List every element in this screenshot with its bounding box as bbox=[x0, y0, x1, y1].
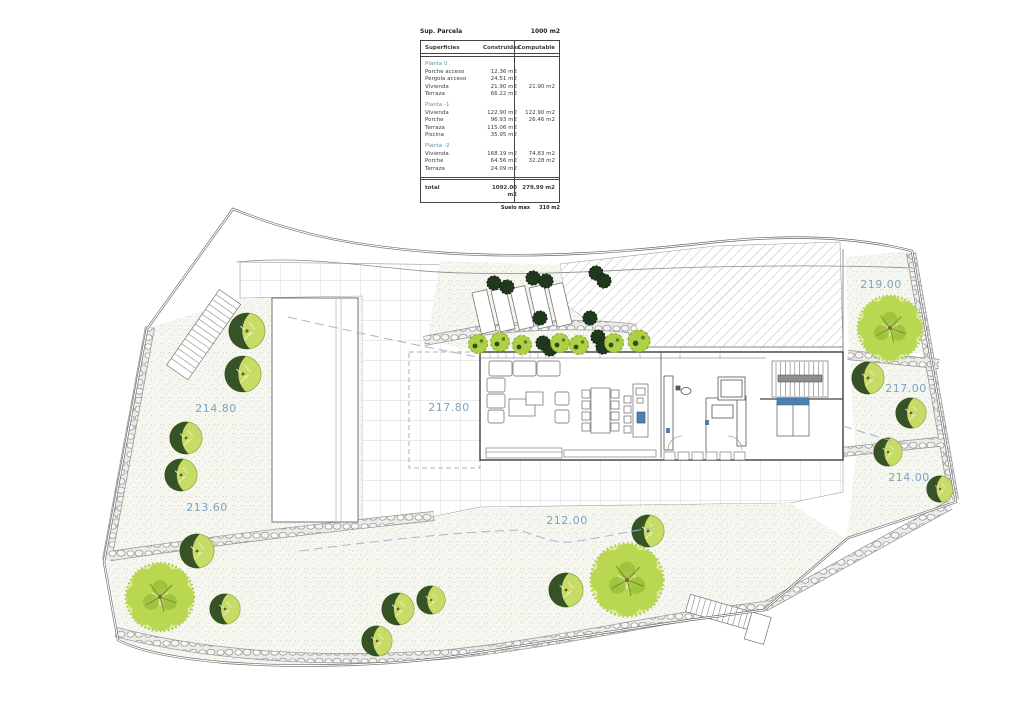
row-built: 122.90 m2 bbox=[483, 110, 517, 117]
shrub-icon bbox=[570, 336, 589, 355]
table-row: Terraza 115.06 m2 bbox=[425, 125, 555, 132]
entrance-wing bbox=[272, 298, 358, 522]
shrub-icon bbox=[605, 334, 624, 353]
large-tree-icon bbox=[126, 563, 194, 631]
column-divider bbox=[514, 41, 515, 201]
tree-icon bbox=[416, 586, 445, 615]
bush-icon bbox=[500, 280, 514, 294]
section-planta-2: Planta -2 bbox=[425, 143, 555, 150]
shrub-icon bbox=[469, 335, 488, 354]
level-label: 214.00 bbox=[888, 471, 930, 484]
table-total-row: total 1092.00 m2 279.99 m2 bbox=[425, 182, 555, 201]
row-computable: 74.83 m2 bbox=[517, 151, 555, 158]
tree-icon bbox=[180, 534, 215, 568]
section-planta-1: Planta -1 bbox=[425, 102, 555, 109]
level-label: 212.00 bbox=[546, 514, 588, 527]
large-tree-icon bbox=[591, 544, 664, 617]
row-label: Terraza bbox=[425, 125, 483, 132]
row-computable: 21.90 m2 bbox=[517, 84, 555, 91]
table-row: Terraza 66.22 m2 bbox=[425, 91, 555, 98]
shrub-icon bbox=[551, 334, 570, 353]
shrub-icon bbox=[491, 333, 510, 352]
table-row: Porche 96.93 m2 26.46 m2 bbox=[425, 117, 555, 124]
table-row: Vivienda 21.90 m2 21.90 m2 bbox=[425, 84, 555, 91]
row-label: Terraza bbox=[425, 91, 483, 98]
row-built: 24.09 m2 bbox=[483, 166, 517, 173]
table-row: Vivienda 168.19 m2 74.83 m2 bbox=[425, 151, 555, 158]
tree-icon bbox=[362, 626, 393, 656]
row-built: 12.36 m2 bbox=[483, 69, 517, 76]
footnote-label: Suelo max bbox=[501, 205, 530, 212]
table-row: Pergola acceso 24.51 m2 bbox=[425, 76, 555, 83]
bush-icon bbox=[526, 271, 540, 285]
tree-icon bbox=[896, 398, 927, 428]
table-row: Porche 64.56 m2 32.28 m2 bbox=[425, 158, 555, 165]
row-label: Piscina bbox=[425, 132, 483, 139]
bush-icon bbox=[539, 274, 553, 288]
table-footnote: Suelo max 310 m2 bbox=[420, 205, 560, 212]
header-surfaces: Superficies bbox=[425, 45, 483, 52]
header-built: Construidas bbox=[483, 45, 517, 52]
rule bbox=[421, 177, 559, 178]
parcel-label: Sup. Parcela bbox=[420, 28, 462, 35]
rule bbox=[421, 53, 559, 54]
house bbox=[480, 352, 843, 460]
row-built: 66.22 m2 bbox=[483, 91, 517, 98]
drawing-sheet: 214.80 217.80 213.60 212.00 219.00 217.0… bbox=[0, 0, 1024, 724]
table-header-row: Superficies Construidas Computable bbox=[425, 43, 555, 53]
row-built: 96.93 m2 bbox=[483, 117, 517, 124]
tree-icon bbox=[382, 593, 415, 625]
row-built: 64.56 m2 bbox=[483, 158, 517, 165]
tree-icon bbox=[229, 313, 265, 349]
row-label: Pergola acceso bbox=[425, 76, 483, 83]
shrub-icon bbox=[628, 330, 650, 352]
surface-table-box: Superficies Construidas Computable Plant… bbox=[420, 40, 560, 202]
total-label: total bbox=[425, 185, 483, 192]
parcel-title-row: Sup. Parcela 1000 m2 bbox=[420, 28, 560, 35]
level-label: 214.80 bbox=[195, 402, 237, 415]
row-label: Porche bbox=[425, 158, 483, 165]
row-built: 168.19 m2 bbox=[483, 151, 517, 158]
row-label: Vivienda bbox=[425, 84, 483, 91]
tree-icon bbox=[170, 422, 203, 454]
bush-icon bbox=[487, 276, 501, 290]
row-label: Terraza bbox=[425, 166, 483, 173]
section-planta-0: Planta 0 bbox=[425, 61, 555, 68]
row-built: 21.90 m2 bbox=[483, 84, 517, 91]
row-label: Porche bbox=[425, 117, 483, 124]
row-built: 24.51 m2 bbox=[483, 76, 517, 83]
tree-icon bbox=[852, 362, 885, 394]
table-row: Vivienda 122.90 m2 122.90 m2 bbox=[425, 110, 555, 117]
shrub-icon bbox=[513, 336, 532, 355]
table-row: Piscina 35.95 m2 bbox=[425, 132, 555, 139]
bush-icon bbox=[583, 311, 597, 325]
surface-table: Sup. Parcela 1000 m2 Superficies Constru… bbox=[420, 28, 560, 212]
total-built: 1092.00 m2 bbox=[483, 185, 517, 199]
tree-icon bbox=[926, 476, 953, 503]
row-label: Vivienda bbox=[425, 151, 483, 158]
footnote-value: 310 m2 bbox=[539, 205, 560, 212]
tree-icon bbox=[210, 594, 241, 624]
header-computable: Computable bbox=[517, 45, 555, 52]
row-label: Porche acceso bbox=[425, 69, 483, 76]
row-computable: 122.90 m2 bbox=[517, 110, 555, 117]
bush-icon bbox=[533, 311, 547, 325]
rule bbox=[421, 179, 559, 180]
rule bbox=[421, 56, 559, 57]
row-label: Vivienda bbox=[425, 110, 483, 117]
level-label: 219.00 bbox=[860, 278, 902, 291]
parking-stalls bbox=[472, 283, 572, 334]
tree-icon bbox=[549, 573, 584, 607]
row-built: 115.06 m2 bbox=[483, 125, 517, 132]
tree-icon bbox=[225, 356, 261, 392]
row-computable: 32.28 m2 bbox=[517, 158, 555, 165]
table-row: Terraza 24.09 m2 bbox=[425, 166, 555, 173]
level-label: 217.80 bbox=[428, 401, 470, 414]
bed bbox=[777, 398, 809, 436]
large-tree-icon bbox=[858, 296, 923, 361]
tree-icon bbox=[165, 459, 198, 491]
row-computable: 26.46 m2 bbox=[517, 117, 555, 124]
total-computable: 279.99 m2 bbox=[517, 185, 555, 192]
level-label: 217.00 bbox=[885, 382, 927, 395]
parcel-value: 1000 m2 bbox=[531, 28, 560, 35]
table-row: Porche acceso 12.36 m2 bbox=[425, 69, 555, 76]
bush-icon bbox=[597, 274, 611, 288]
level-label: 213.60 bbox=[186, 501, 228, 514]
row-built: 35.95 m2 bbox=[483, 132, 517, 139]
